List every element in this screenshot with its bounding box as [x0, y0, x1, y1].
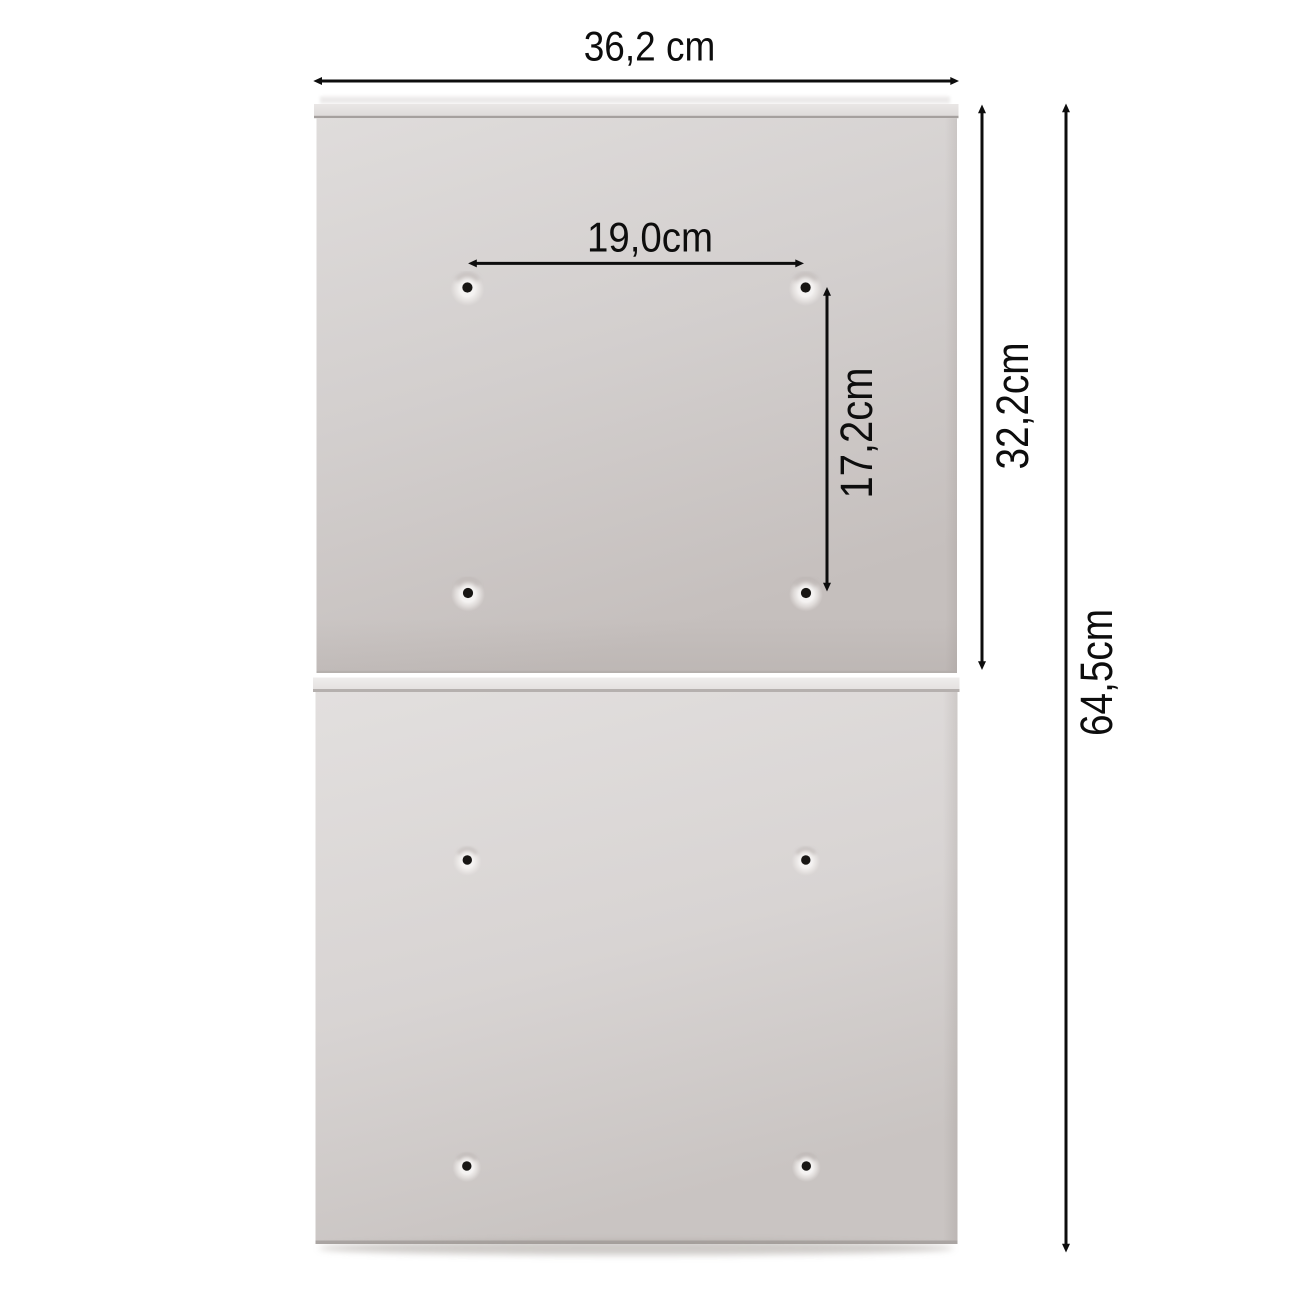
svg-text:36,2 cm: 36,2 cm — [584, 23, 716, 70]
svg-text:32,2cm: 32,2cm — [987, 343, 1038, 470]
svg-text:17,2cm: 17,2cm — [831, 368, 882, 499]
svg-text:19,0cm: 19,0cm — [587, 214, 713, 261]
svg-text:64,5cm: 64,5cm — [1071, 609, 1122, 736]
